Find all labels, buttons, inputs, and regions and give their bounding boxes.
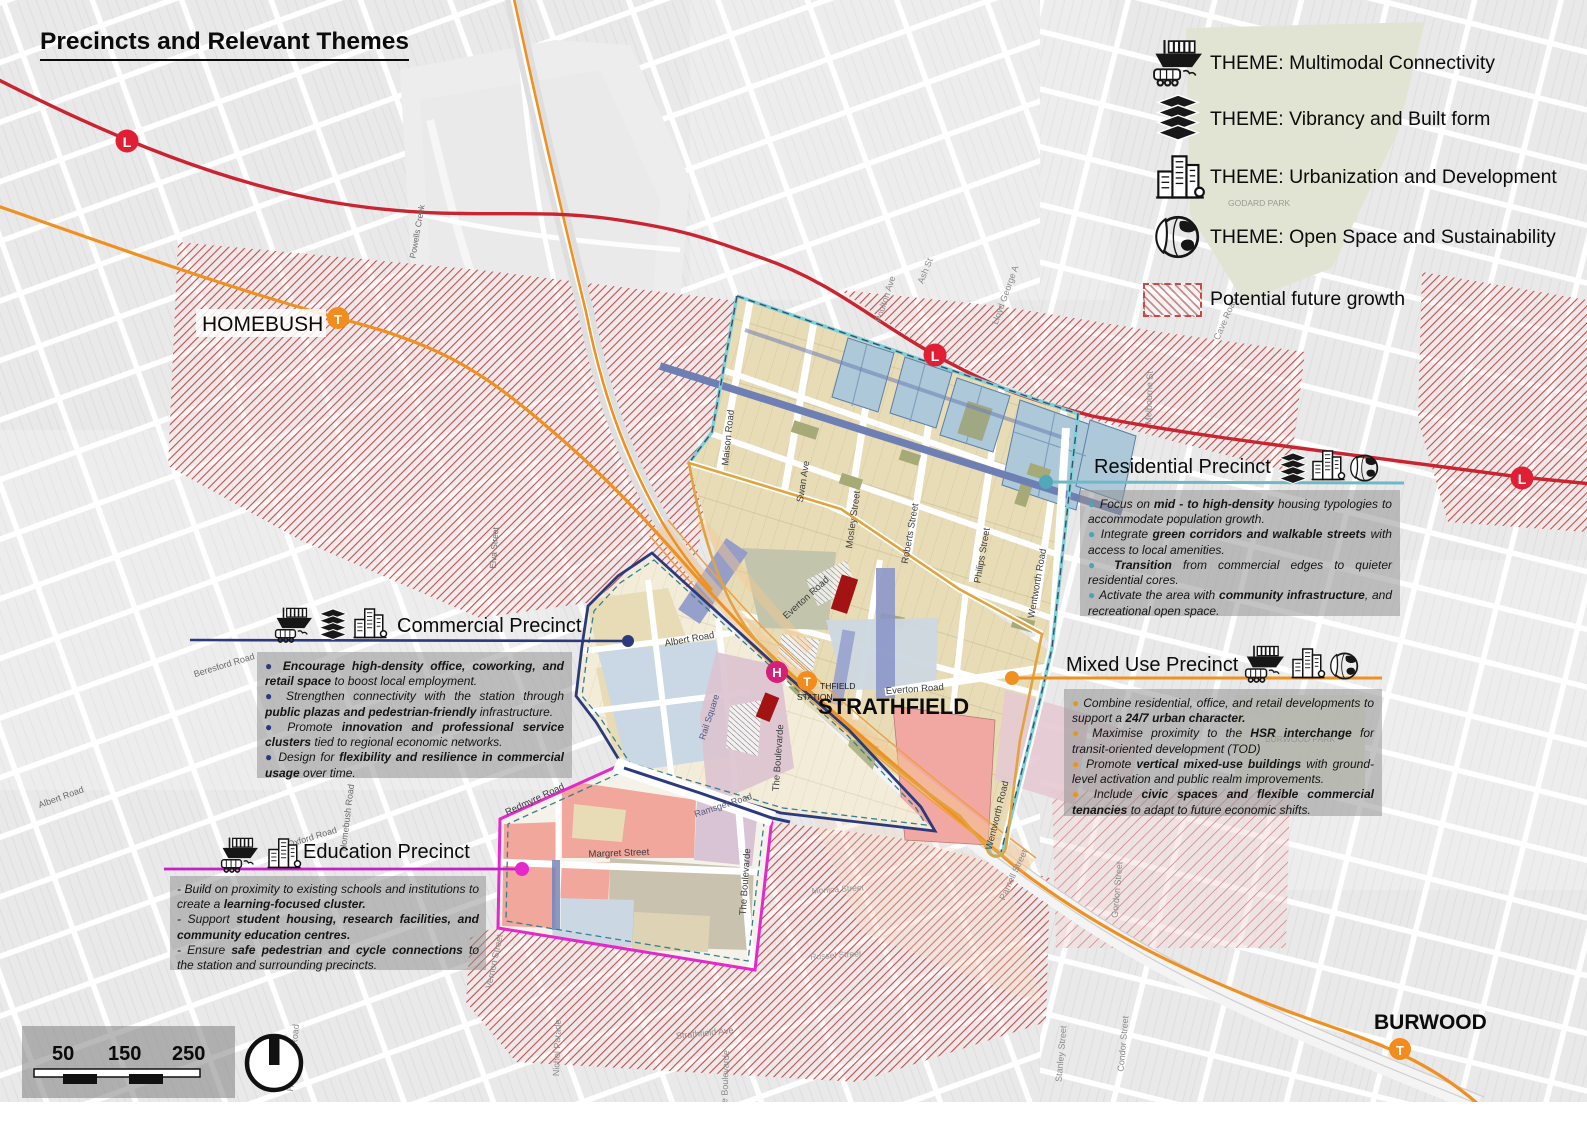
svg-text:Margret Street: Margret Street [588, 847, 649, 860]
svg-text:L: L [123, 134, 132, 150]
svg-text:GODARD PARK: GODARD PARK [1228, 198, 1291, 208]
svg-text:T: T [1396, 1043, 1404, 1058]
svg-text:T: T [803, 675, 811, 689]
svg-text:L: L [1518, 471, 1527, 487]
svg-text:T: T [334, 312, 342, 327]
svg-text:Melbourne St: Melbourne St [1143, 370, 1155, 424]
svg-text:H: H [772, 665, 781, 680]
svg-text:THFIELD: THFIELD [820, 681, 855, 691]
svg-text:L: L [931, 348, 940, 364]
svg-text:Nichol Parade: Nichol Parade [551, 1019, 563, 1076]
